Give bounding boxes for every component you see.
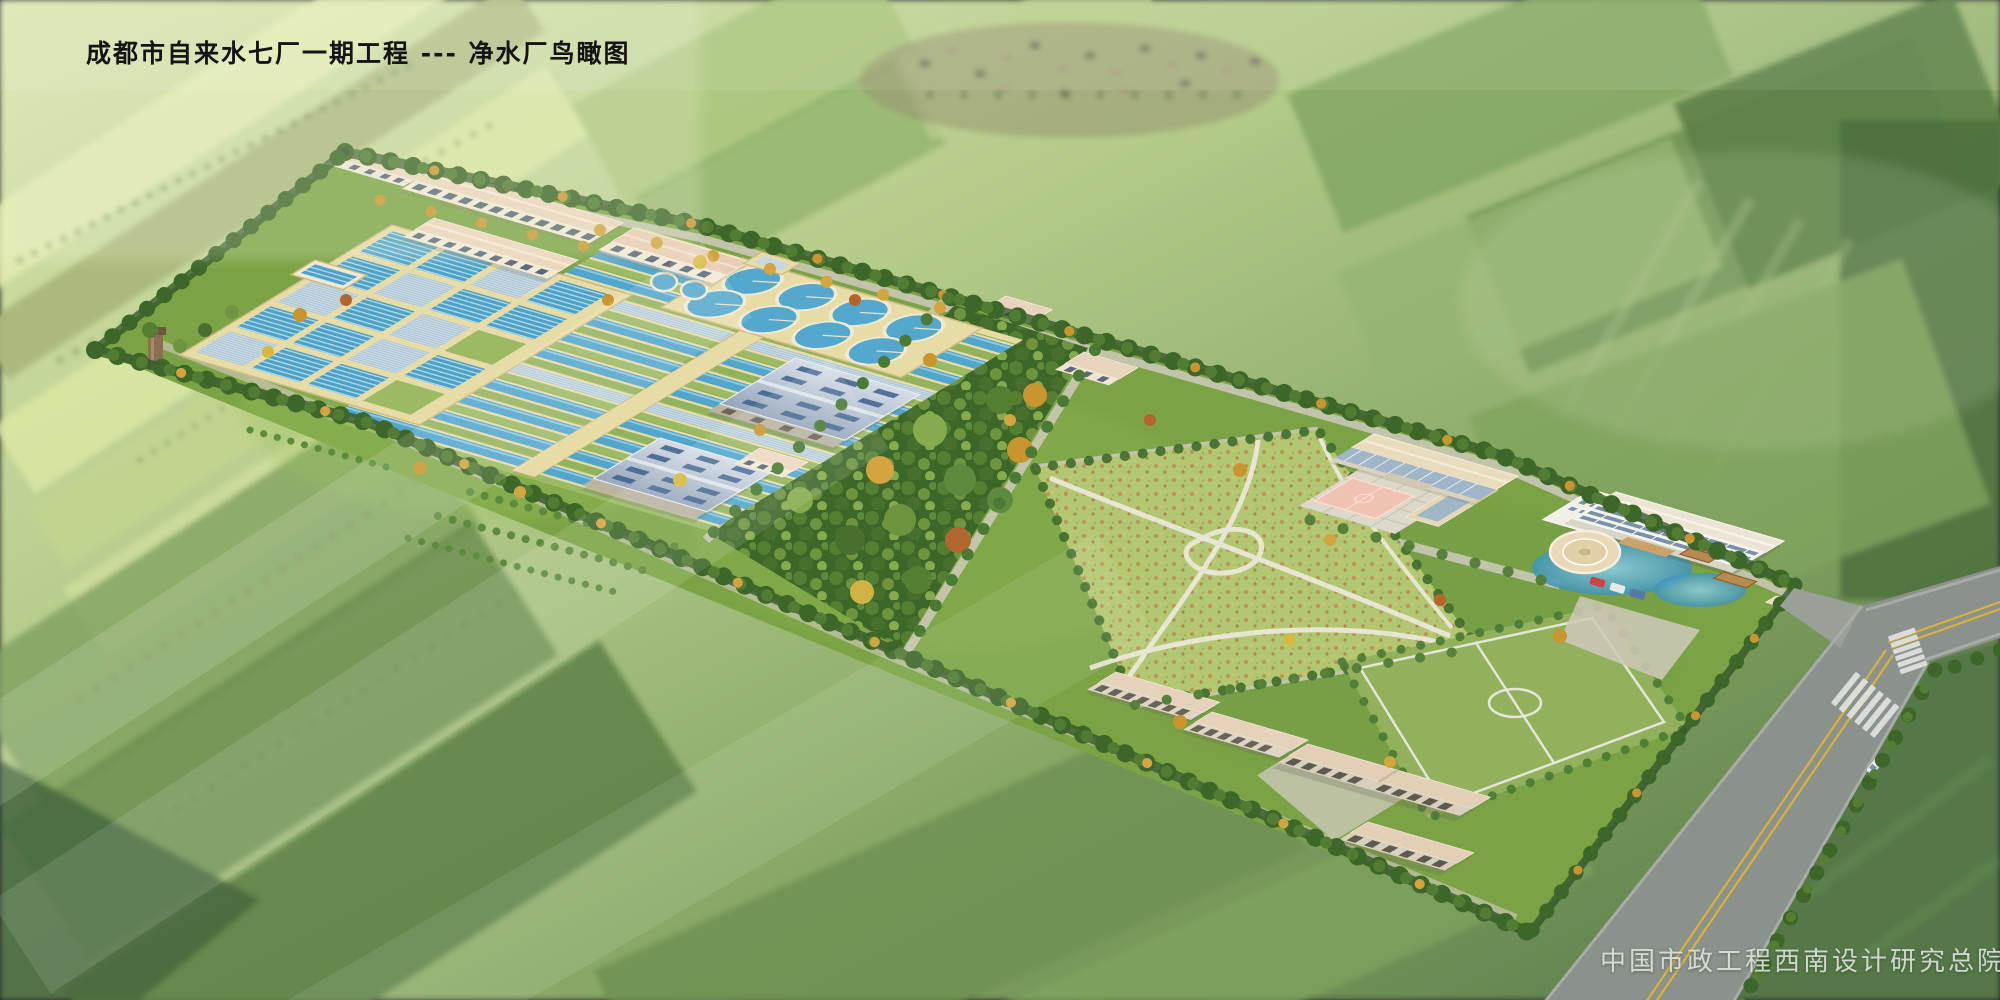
aerial-rendering: 成都市自来水七厂一期工程 --- 净水厂鸟瞰图 中国市政工程西南设计研究总院: [0, 0, 2000, 1000]
scene-canvas: [0, 0, 2000, 1000]
page-title: 成都市自来水七厂一期工程 --- 净水厂鸟瞰图: [86, 34, 631, 70]
round-pavilion: [1550, 531, 1620, 573]
design-institute-attribution: 中国市政工程西南设计研究总院: [1600, 941, 2000, 978]
